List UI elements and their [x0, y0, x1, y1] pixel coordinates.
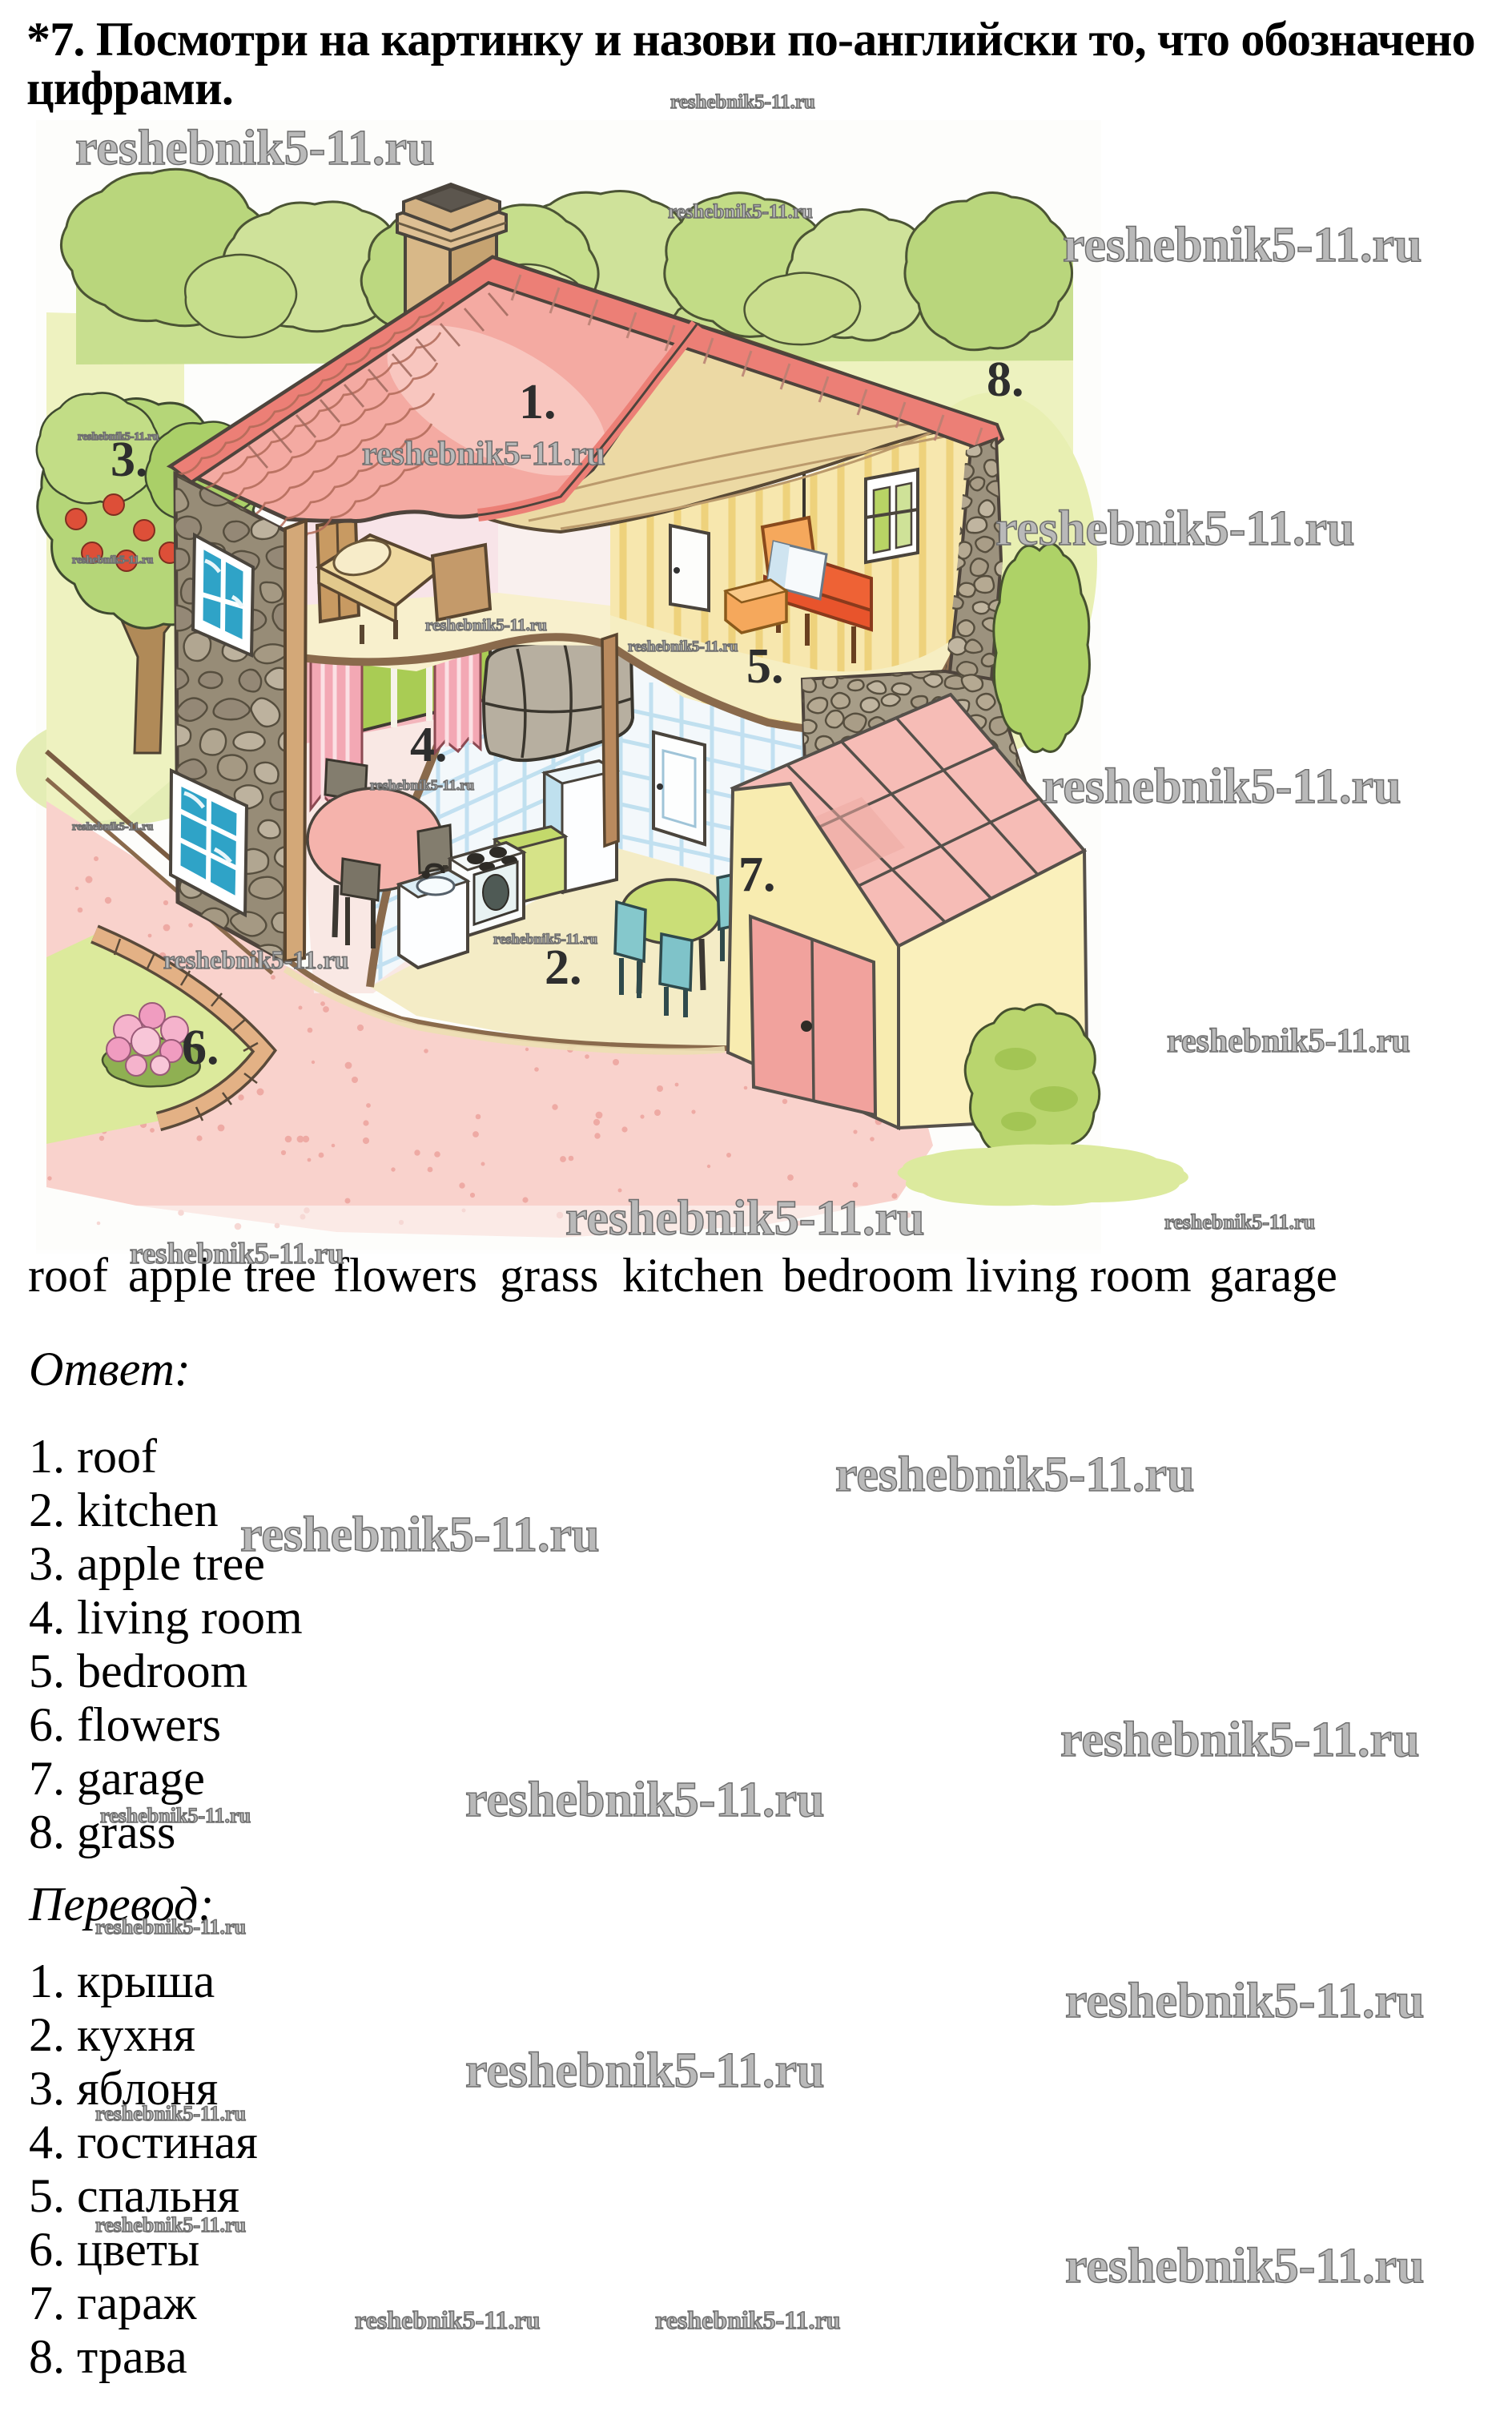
- svg-text:1.: 1.: [519, 375, 557, 429]
- svg-text:4.: 4.: [410, 718, 448, 772]
- svg-text:5.: 5.: [746, 639, 784, 694]
- svg-text:6.: 6.: [182, 1021, 219, 1075]
- svg-text:7.: 7.: [738, 848, 776, 902]
- svg-text:2.: 2.: [545, 940, 582, 995]
- svg-text:8.: 8.: [987, 352, 1024, 407]
